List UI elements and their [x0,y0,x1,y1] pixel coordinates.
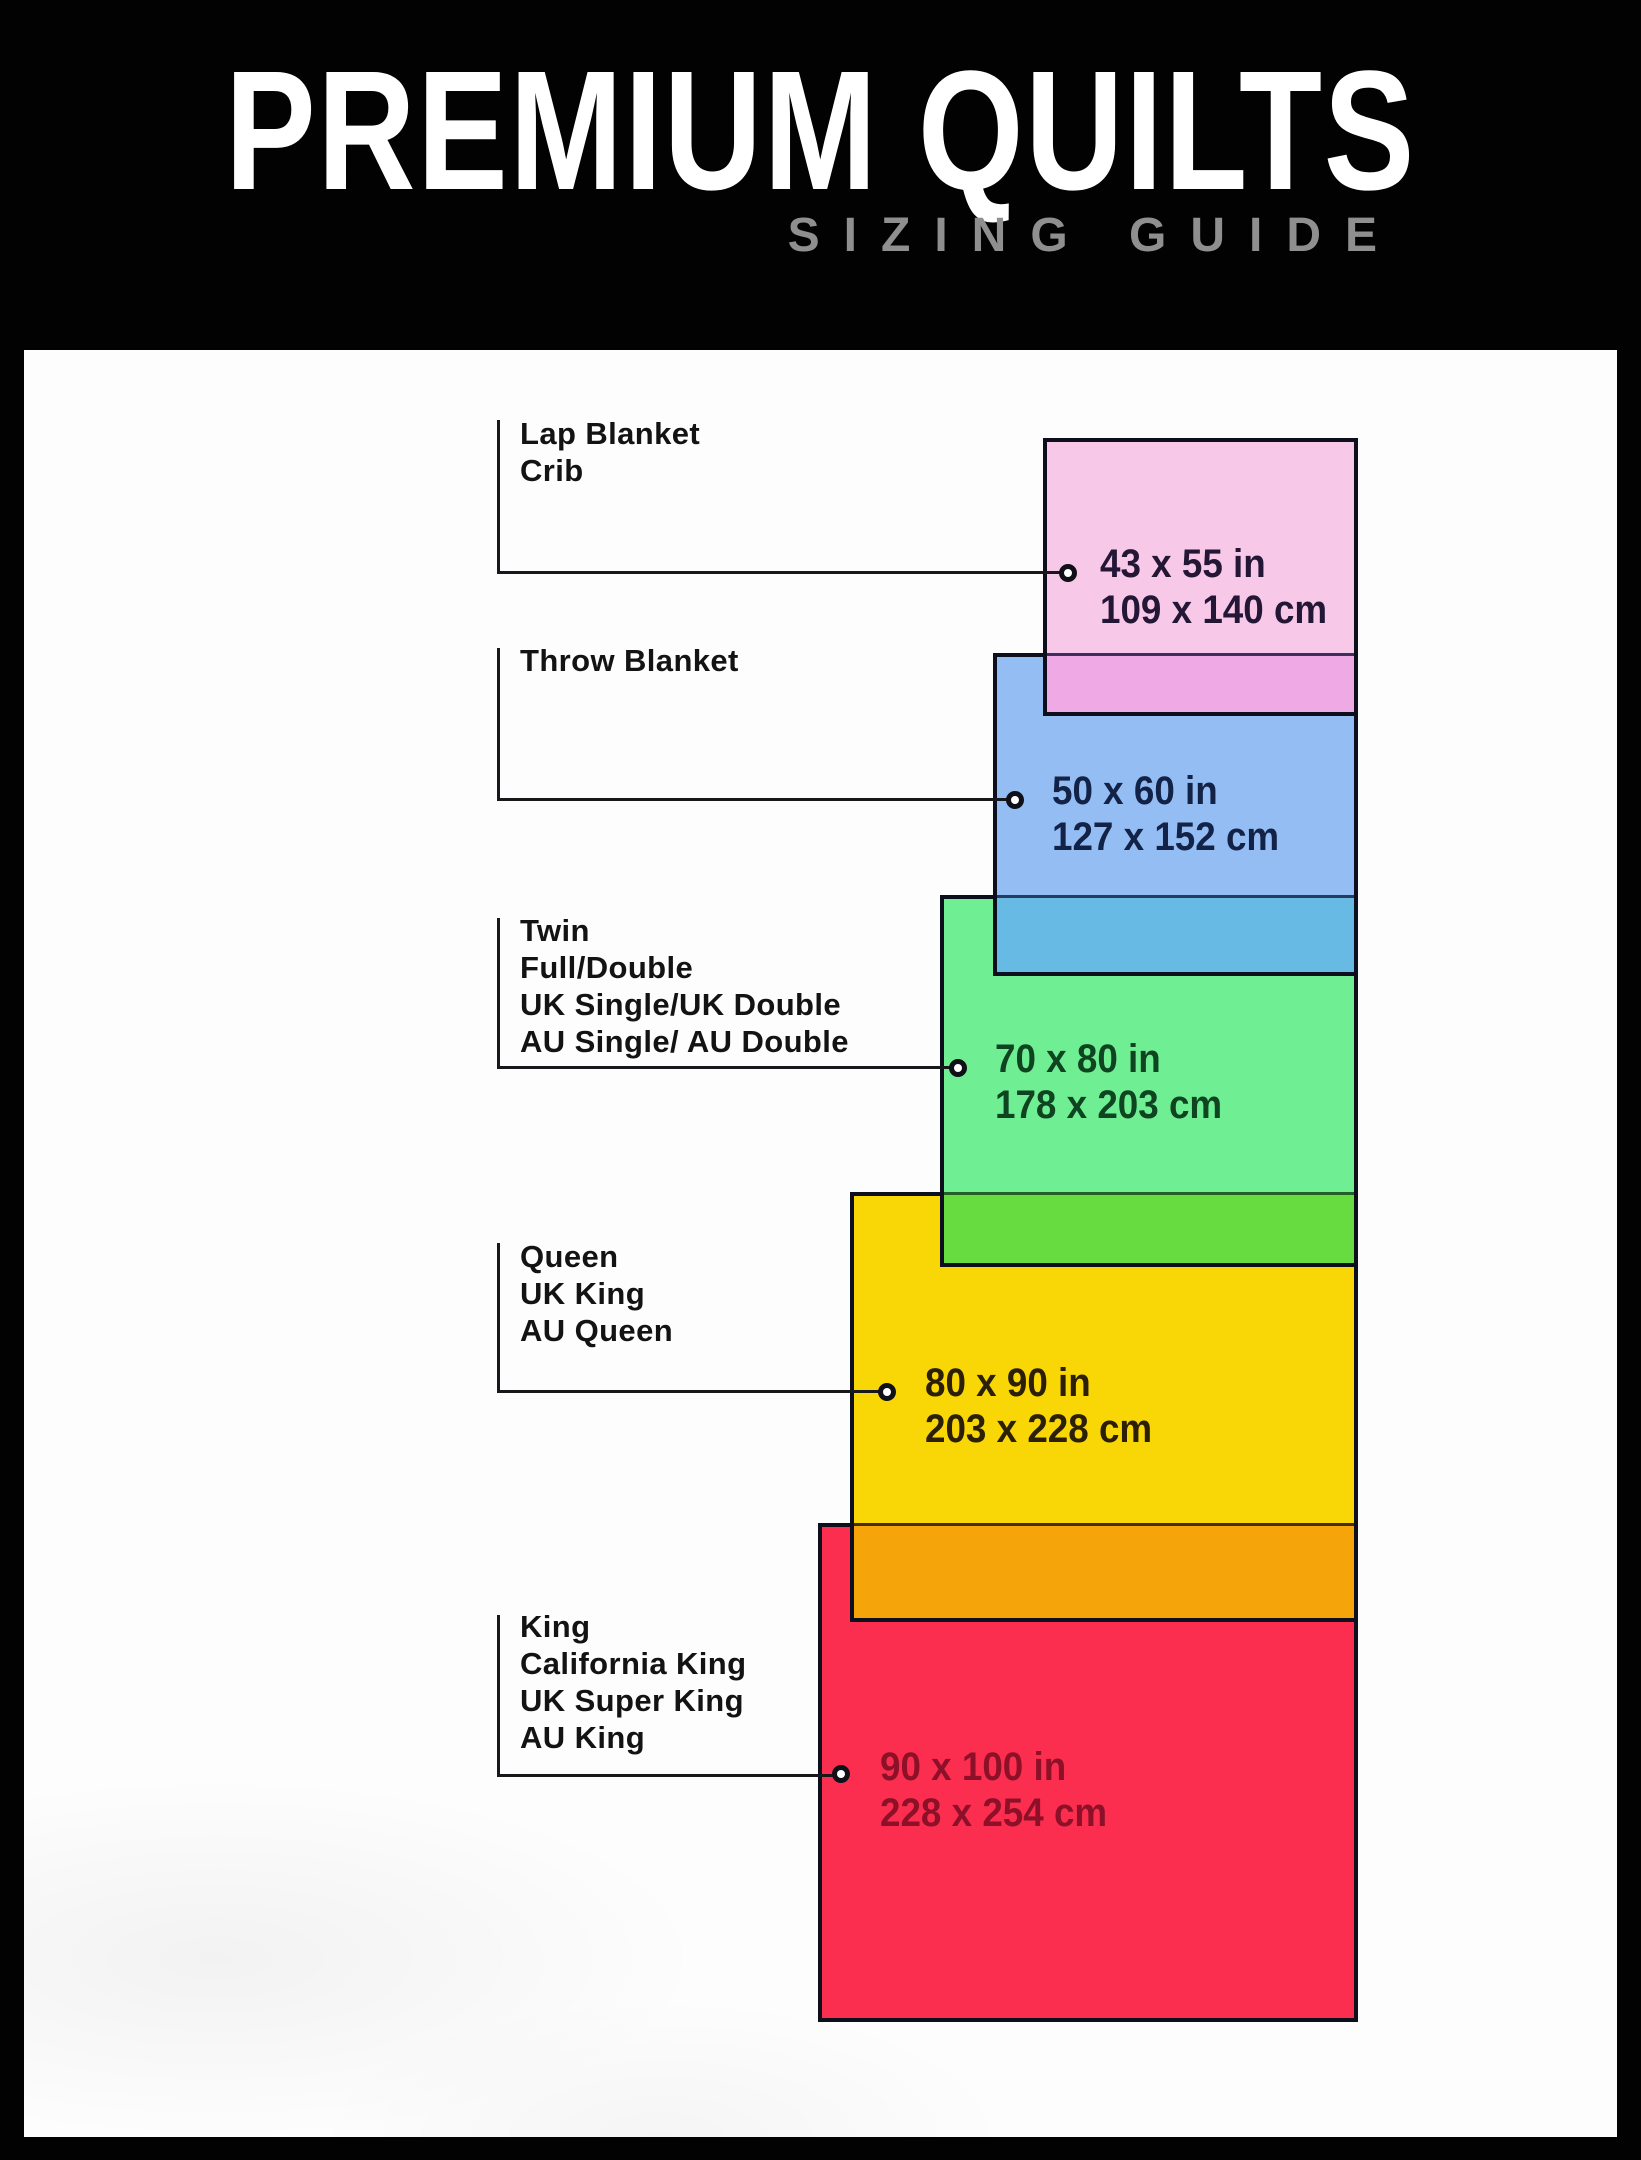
leader-vline-throw [497,648,500,801]
size-cm: 228 x 254 cm [880,1790,1107,1836]
size-inches: 80 x 90 in [925,1360,1152,1406]
circle-marker-queen [878,1383,896,1401]
leader-hline-queen [497,1390,889,1393]
dimensions-twin: 70 x 80 in 178 x 203 cm [995,1036,1222,1128]
label-line: Crib [520,452,700,489]
size-cm: 203 x 228 cm [925,1406,1152,1452]
circle-marker-king [832,1765,850,1783]
circle-marker-twin [949,1059,967,1077]
overlap-band-twin-queen [944,1192,1354,1263]
label-group-twin: Twin Full/Double UK Single/UK Double AU … [520,912,849,1060]
page-title: PREMIUM QUILTS [164,46,1477,216]
label-line: Twin [520,912,849,949]
label-line: AU Queen [520,1312,673,1349]
label-line: UK Single/UK Double [520,986,849,1023]
size-inches: 50 x 60 in [1052,768,1279,814]
dimensions-throw: 50 x 60 in 127 x 152 cm [1052,768,1279,860]
dimensions-lap-crib: 43 x 55 in 109 x 140 cm [1100,541,1327,633]
dimensions-king: 90 x 100 in 228 x 254 cm [880,1744,1107,1836]
leader-vline-lap [497,420,500,574]
leader-hline-king [497,1774,843,1777]
label-line: California King [520,1645,746,1682]
overlap-band-queen-king [854,1523,1354,1618]
label-group-king: King California King UK Super King AU Ki… [520,1608,746,1756]
label-line: Full/Double [520,949,849,986]
circle-marker-throw [1006,791,1024,809]
label-group-queen: Queen UK King AU Queen [520,1238,673,1349]
sizing-guide-poster: PREMIUM QUILTS SIZING GUIDE Lap Blanket … [0,0,1641,2160]
dimensions-queen: 80 x 90 in 203 x 228 cm [925,1360,1152,1452]
overlap-band-lap-throw [1047,653,1354,712]
leader-vline-twin [497,918,500,1069]
leader-hline-twin [497,1066,960,1069]
label-line: UK King [520,1275,673,1312]
label-line: UK Super King [520,1682,746,1719]
size-inches: 43 x 55 in [1100,541,1327,587]
label-group-lap-crib: Lap Blanket Crib [520,415,700,489]
label-line: AU King [520,1719,746,1756]
label-line: Throw Blanket [520,642,739,679]
page-subtitle: SIZING GUIDE [788,212,1401,260]
overlap-band-throw-twin [997,895,1354,972]
leader-vline-king [497,1615,500,1777]
size-cm: 127 x 152 cm [1052,814,1279,860]
size-inches: 70 x 80 in [995,1036,1222,1082]
size-inches: 90 x 100 in [880,1744,1107,1790]
size-cm: 178 x 203 cm [995,1082,1222,1128]
circle-marker-lap [1059,564,1077,582]
label-line: King [520,1608,746,1645]
leader-hline-lap [497,571,1070,574]
size-cm: 109 x 140 cm [1100,587,1327,633]
leader-vline-queen [497,1243,500,1393]
leader-hline-throw [497,798,1017,801]
label-line: AU Single/ AU Double [520,1023,849,1060]
label-line: Lap Blanket [520,415,700,452]
label-line: Queen [520,1238,673,1275]
label-group-throw: Throw Blanket [520,642,739,679]
